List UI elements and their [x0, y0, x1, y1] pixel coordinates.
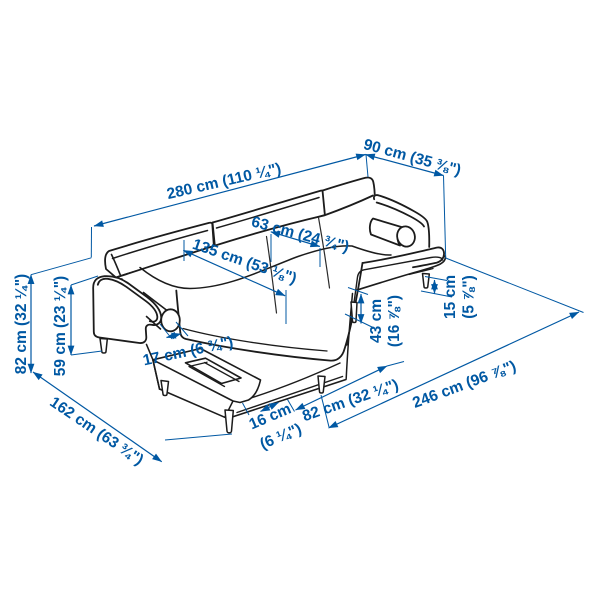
svg-text:280 cm (110 ¼"): 280 cm (110 ¼"): [165, 160, 283, 203]
svg-text:43 cm(16 ⅞"): 43 cm(16 ⅞"): [368, 295, 403, 347]
svg-text:162 cm (63 ¾"): 162 cm (63 ¾"): [47, 394, 147, 469]
svg-text:82 cm (32 ¼"): 82 cm (32 ¼"): [13, 274, 30, 374]
svg-text:59 cm (23 ¼"): 59 cm (23 ¼"): [52, 276, 69, 376]
svg-text:246 cm (96 ⅞"): 246 cm (96 ⅞"): [410, 358, 518, 412]
svg-text:15 cm(5 ⅞"): 15 cm(5 ⅞"): [442, 275, 478, 319]
svg-text:16 cm(6 ¼"): 16 cm(6 ¼"): [247, 400, 305, 454]
